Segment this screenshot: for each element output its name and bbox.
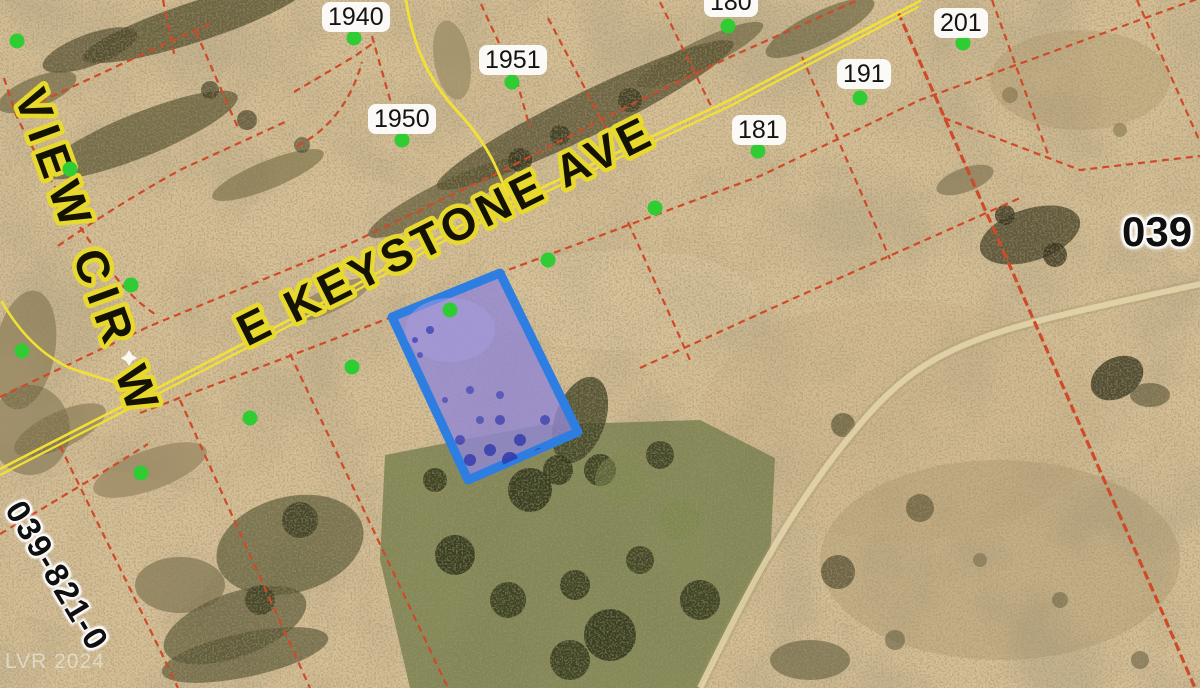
parcel-point-marker[interactable] (15, 344, 30, 359)
parcel-point-marker[interactable] (347, 31, 362, 46)
parcel-point-marker[interactable] (124, 278, 139, 293)
parcel-label-201[interactable]: 201 (934, 8, 988, 38)
parcel-label-191[interactable]: 191 (837, 59, 891, 89)
parcel-label-1950[interactable]: 1950 (368, 104, 436, 134)
parcel-label-1951[interactable]: 1951 (479, 45, 547, 75)
parcel-point-marker[interactable] (721, 19, 736, 34)
parcel-point-marker[interactable] (134, 466, 149, 481)
parcel-point-marker[interactable] (443, 303, 458, 318)
parcel-point-marker[interactable] (10, 34, 25, 49)
aerial-parcel-map[interactable]: E KEYSTONE AVE VIEW CIR W (0, 0, 1200, 688)
parcel-label-181[interactable]: 181 (732, 115, 786, 145)
parcel-label-1940[interactable]: 1940 (322, 2, 390, 32)
parcel-point-marker[interactable] (395, 133, 410, 148)
parcel-label-180[interactable]: 180 (704, 0, 758, 17)
district-label: 039 (1122, 208, 1192, 256)
parcel-point-marker[interactable] (853, 91, 868, 106)
watermark: LVR 2024 (5, 650, 105, 674)
parcel-point-marker[interactable] (541, 253, 556, 268)
map-canvas: E KEYSTONE AVE VIEW CIR W (0, 0, 1200, 688)
parcel-point-marker[interactable] (243, 411, 258, 426)
parcel-point-marker[interactable] (345, 360, 360, 375)
parcel-point-marker[interactable] (505, 75, 520, 90)
parcel-point-marker[interactable] (63, 162, 78, 177)
speckle-texture (0, 0, 1200, 688)
parcel-point-marker[interactable] (751, 144, 766, 159)
parcel-point-marker[interactable] (648, 201, 663, 216)
